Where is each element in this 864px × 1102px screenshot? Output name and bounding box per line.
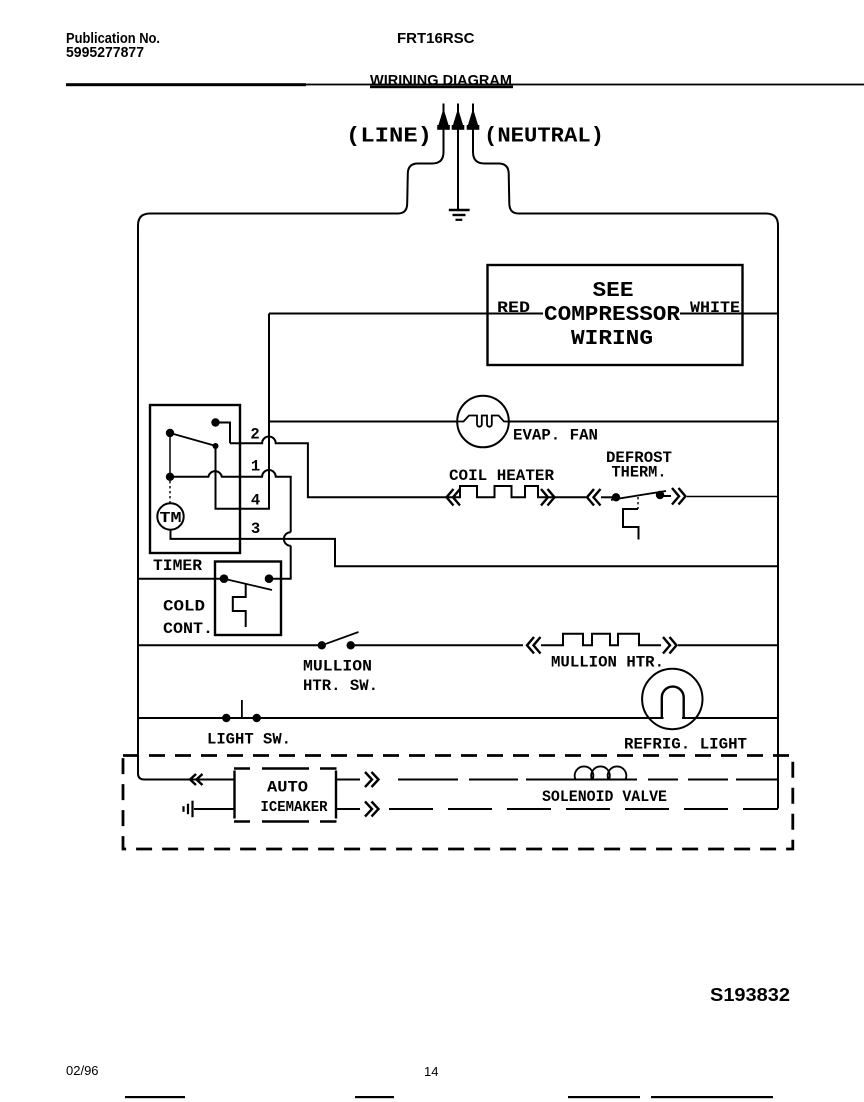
svg-text:S193832: S193832 [710, 985, 790, 1005]
svg-text:REFRIG. LIGHT: REFRIG. LIGHT [624, 736, 747, 754]
svg-text:EVAP. FAN: EVAP. FAN [513, 427, 598, 445]
svg-text:14: 14 [424, 1064, 438, 1079]
svg-text:3: 3 [251, 520, 260, 538]
svg-text:THERM.: THERM. [612, 464, 667, 482]
svg-text:4: 4 [251, 492, 260, 510]
svg-text:SOLENOID VALVE: SOLENOID VALVE [542, 788, 667, 806]
svg-text:COLD: COLD [163, 598, 205, 616]
svg-text:02/96: 02/96 [66, 1063, 99, 1078]
svg-text:5995277877: 5995277877 [66, 44, 144, 61]
svg-text:FRT16RSC: FRT16RSC [397, 30, 475, 47]
svg-text:HTR. SW.: HTR. SW. [303, 677, 378, 695]
svg-text:TIMER: TIMER [153, 557, 203, 575]
svg-text:MULLION: MULLION [303, 658, 372, 676]
svg-text:AUTO: AUTO [267, 779, 308, 797]
svg-text:COIL HEATER: COIL HEATER [449, 467, 555, 485]
svg-text:(LINE): (LINE) [346, 126, 432, 149]
svg-text:LIGHT SW.: LIGHT SW. [207, 731, 291, 749]
svg-text:ICEMAKER: ICEMAKER [261, 800, 328, 816]
svg-text:1: 1 [251, 458, 260, 476]
svg-text:2: 2 [250, 426, 259, 444]
svg-text:COMPRESSOR: COMPRESSOR [544, 304, 680, 327]
svg-text:SEE: SEE [593, 280, 634, 303]
svg-text:TM: TM [160, 511, 182, 527]
svg-text:WIRING: WIRING [571, 328, 653, 351]
svg-text:(NEUTRAL): (NEUTRAL) [484, 126, 604, 149]
svg-text:CONT.: CONT. [163, 620, 213, 638]
svg-text:MULLION HTR.: MULLION HTR. [551, 654, 664, 672]
